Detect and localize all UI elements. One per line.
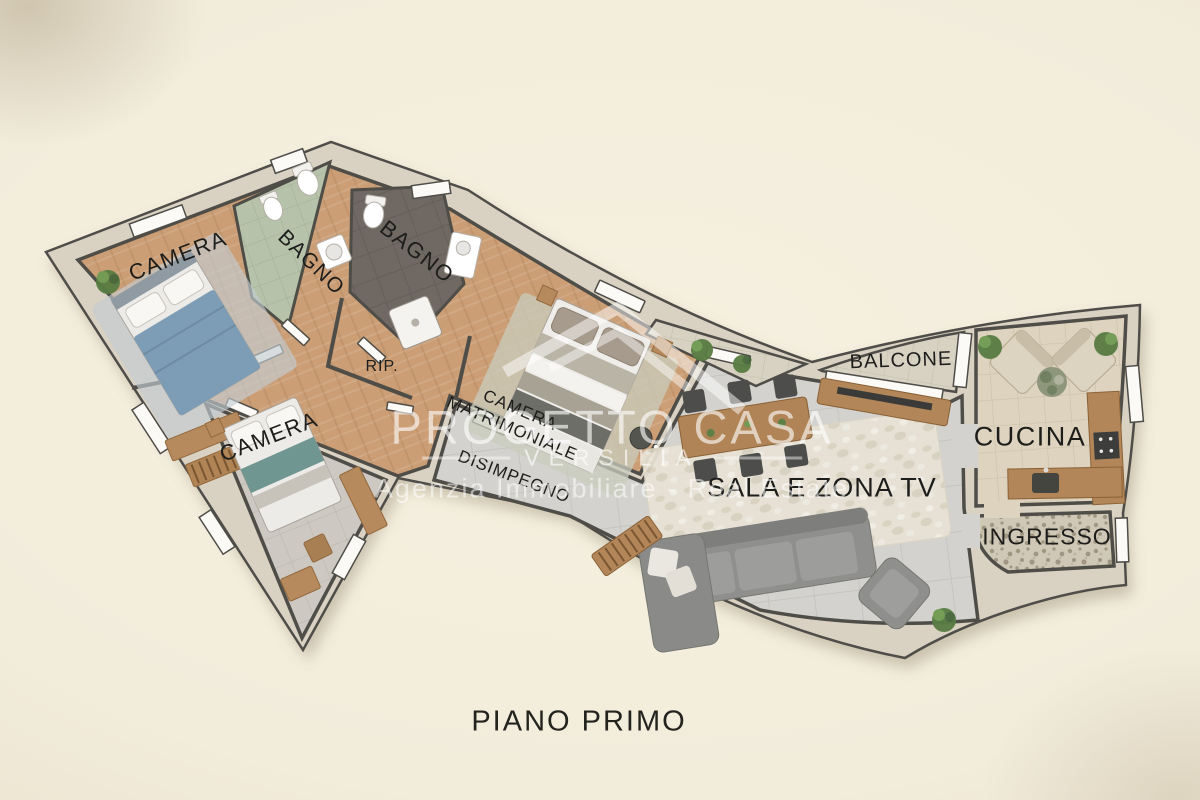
plan-title: PIANO PRIMO [471,706,686,739]
room-label-rip: RIP. [365,358,398,376]
floorplan-page: CAMERA BAGNO BAGNO RIP. CAMERA CAMERA MA… [0,0,1200,800]
plant-camera-1 [96,270,120,294]
plant-sala [932,608,956,632]
room-label-sala: SALA E ZONA TV [707,473,937,504]
room-label-ingresso: INGRESSO [982,524,1111,551]
room-label-cucina: CUCINA [974,422,1087,453]
plant-cucina-center [1037,367,1067,397]
room-label-balcone: BALCONE [849,348,952,375]
floorplan-drawing [0,0,1200,800]
